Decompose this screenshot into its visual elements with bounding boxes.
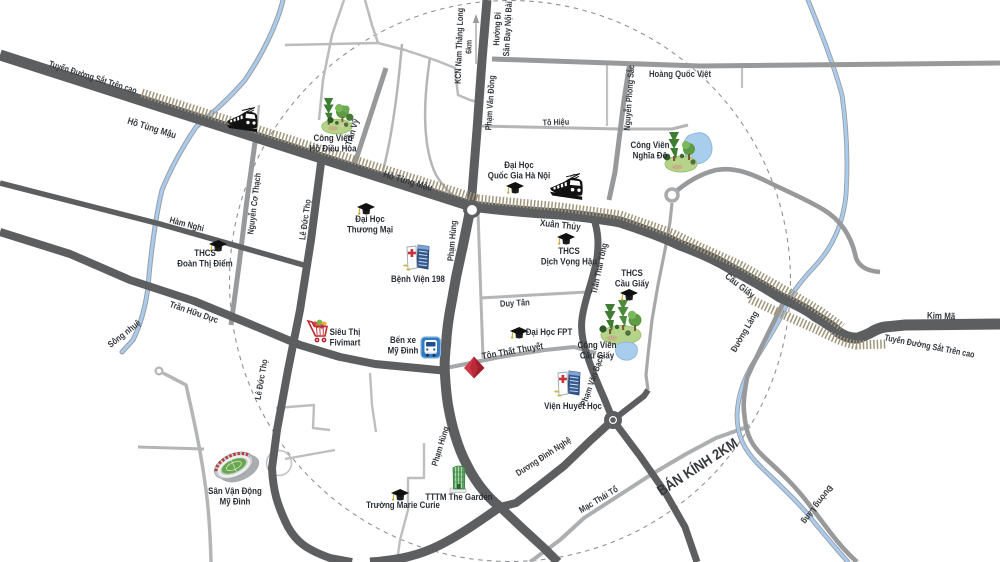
svg-text:Siêu ThịFivimart: Siêu ThịFivimart [330,326,361,347]
svg-text:Hoàng Quốc Việt: Hoàng Quốc Việt [649,68,711,79]
svg-text:6km: 6km [464,40,474,55]
svg-text:Bến xeMỹ Đình: Bến xeMỹ Đình [388,334,419,355]
svg-text:Tô Hiệu: Tô Hiệu [543,117,570,128]
svg-text:Duy Tân: Duy Tân [500,297,530,309]
svg-text:Công ViênCầu Giấy: Công ViênCầu Giấy [578,339,617,360]
svg-text:Bệnh Viện 198: Bệnh Viện 198 [391,273,445,284]
svg-text:Công ViênNghĩa Đô: Công ViênNghĩa Đô [631,139,670,160]
svg-text:Kim Mã: Kim Mã [927,310,956,322]
svg-text:Công ViênHồ Điều Hòa: Công ViênHồ Điều Hòa [309,132,356,153]
svg-text:Đại Học FPT: Đại Học FPT [526,326,573,337]
svg-text:Trường Marie Curie: Trường Marie Curie [366,499,440,510]
svg-text:Viện Huyết Học: Viện Huyết Học [544,400,602,411]
